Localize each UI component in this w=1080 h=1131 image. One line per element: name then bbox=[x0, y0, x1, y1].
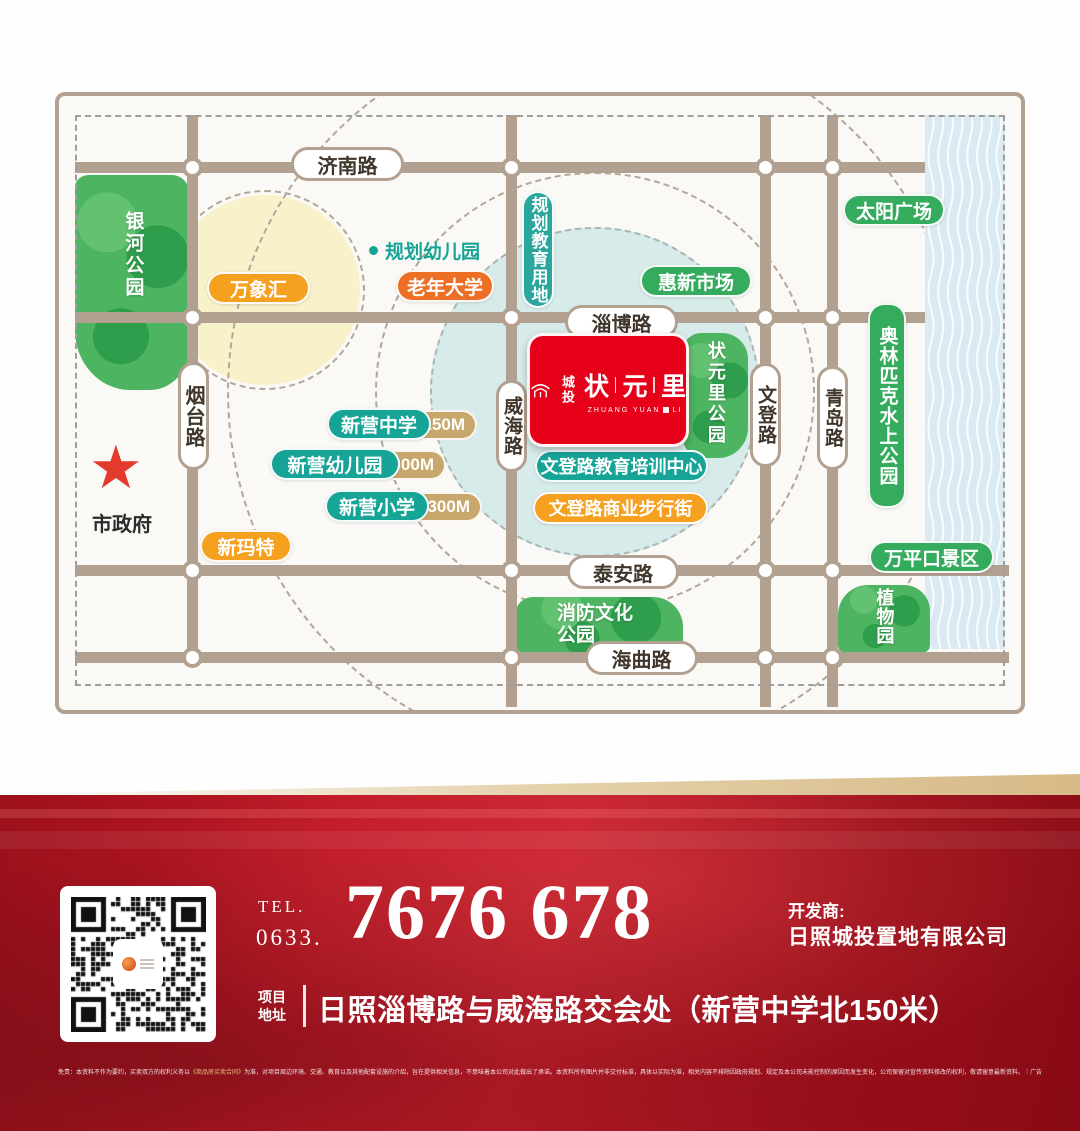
road-label-jinan-text: 济南路 bbox=[318, 150, 378, 179]
road-label-qingdao-text: 青岛路 bbox=[819, 388, 846, 448]
address-label-top: 项目 bbox=[258, 988, 286, 1006]
qr-badge-text-lines bbox=[140, 959, 154, 969]
poi-guihua-jiaoyu-text: 规划教育用地 bbox=[526, 196, 551, 304]
poi-wendeng-shangye: 文登路商业步行街 bbox=[533, 492, 708, 524]
road-label-taian-text: 泰安路 bbox=[593, 558, 653, 587]
road-label-yantai: 烟台路 bbox=[178, 362, 209, 470]
banner-sheen bbox=[0, 809, 1080, 818]
road-label-weihai-text: 威海路 bbox=[498, 396, 525, 456]
poi-taiyang-guangchang: 太阳广场 bbox=[843, 194, 945, 226]
poi-guihua-youeryuan: 规划幼儿园 bbox=[369, 237, 480, 264]
project-logo-block: 城投 状 元 里 ZHUANG YUAN LI bbox=[527, 333, 689, 447]
poi-aolinpike: 奥林匹克水上公园 bbox=[868, 303, 906, 508]
poi-guihua-jiaoyu: 规划教育用地 bbox=[522, 191, 554, 308]
poster: 银河公园 状元里公园 消防文化公园 植物园 bbox=[0, 0, 1080, 1131]
distance-xiaoxue-text: 300M bbox=[427, 497, 470, 517]
road-label-weihai: 威海路 bbox=[496, 380, 527, 472]
disclaimer-contract: 《商品房买卖合同》 bbox=[190, 1069, 244, 1076]
road-label-haiqu: 海曲路 bbox=[585, 641, 698, 675]
project-latin-right: LI bbox=[672, 407, 682, 414]
project-address: 日照淄博路与威海路交会处（新营中学北150米） bbox=[318, 987, 958, 1029]
road-label-haiqu-text: 海曲路 bbox=[612, 644, 672, 673]
project-latin: ZHUANG YUAN LI bbox=[588, 407, 683, 414]
bullet-dot-icon bbox=[369, 246, 378, 255]
address-label: 项目 地址 bbox=[258, 988, 286, 1024]
qr-logo-icon bbox=[122, 957, 136, 971]
poi-laonian-daxue: 老年大学 bbox=[396, 270, 494, 302]
road-label-wendeng: 文登路 bbox=[750, 363, 781, 467]
name-separator bbox=[615, 377, 617, 393]
project-name-char: 元 bbox=[622, 367, 647, 403]
map-canvas: 银河公园 状元里公园 消防文化公园 植物园 bbox=[59, 96, 1021, 710]
project-name-char: 里 bbox=[661, 367, 686, 403]
road-label-qingdao: 青岛路 bbox=[817, 366, 848, 470]
poi-wendeng-jiaoyu: 文登路教育培训中心 bbox=[535, 450, 708, 482]
road-label-taian: 泰安路 bbox=[567, 555, 679, 589]
address-divider bbox=[303, 985, 306, 1027]
poi-huixin-shichang-text: 惠新市场 bbox=[658, 268, 734, 295]
road-label-wendeng-text: 文登路 bbox=[752, 385, 779, 445]
poi-taiyang-guangchang-text: 太阳广场 bbox=[856, 197, 932, 224]
project-latin-left: ZHUANG YUAN bbox=[588, 407, 661, 414]
location-map: 银河公园 状元里公园 消防文化公园 植物园 bbox=[55, 92, 1025, 714]
qr-code bbox=[60, 886, 216, 1042]
poi-xinying-youeryuan: 新营幼儿园 bbox=[270, 448, 400, 480]
project-name: 状 元 里 ZHUANG YUAN LI bbox=[584, 367, 686, 414]
road-label-yantai-text: 烟台路 bbox=[179, 385, 208, 448]
road-label-jinan: 济南路 bbox=[291, 147, 404, 181]
address-label-bottom: 地址 bbox=[258, 1006, 286, 1024]
poi-aolinpike-text: 奥林匹克水上公园 bbox=[874, 326, 901, 486]
poi-xinmate: 新玛特 bbox=[200, 530, 292, 562]
developer-label: 开发商: bbox=[788, 897, 845, 922]
poi-xinying-xiaoxue-text: 新营小学 bbox=[339, 493, 415, 520]
poi-wendeng-shangye-text: 文登路商业步行街 bbox=[549, 495, 693, 521]
phone-number: 7676 678 bbox=[345, 867, 654, 957]
poi-xinying-zhongxue-text: 新营中学 bbox=[341, 411, 417, 438]
poi-laonian-daxue-text: 老年大学 bbox=[407, 273, 483, 300]
name-separator bbox=[653, 377, 655, 393]
gate-logo-icon bbox=[530, 372, 551, 408]
contact-banner: TEL. 0633. 7676 678 开发商: 日照城投置地有限公司 项目 地… bbox=[0, 795, 1080, 1131]
poi-xinmate-text: 新玛特 bbox=[217, 533, 274, 560]
disclaimer-pre: 免责：本资料不作为要约，买卖双方的权利义务以 bbox=[58, 1069, 190, 1076]
project-brand: 城投 bbox=[558, 375, 577, 405]
poi-xinying-zhongxue: 新营中学 bbox=[327, 408, 431, 440]
poi-wanxianghui: 万象汇 bbox=[207, 272, 310, 304]
qr-center-badge bbox=[115, 941, 161, 987]
poi-wendeng-jiaoyu-text: 文登路教育培训中心 bbox=[541, 453, 703, 479]
poi-shizhengfu: 市政府 bbox=[92, 508, 152, 537]
tel-prefix: 0633. bbox=[256, 925, 323, 951]
poi-wanpingkou: 万平口景区 bbox=[869, 541, 994, 573]
city-hall-star-icon: ★ bbox=[89, 438, 143, 498]
poi-huixin-shichang: 惠新市场 bbox=[640, 265, 752, 297]
poi-guihua-youeryuan-text: 规划幼儿园 bbox=[385, 237, 480, 264]
poi-wanpingkou-text: 万平口景区 bbox=[884, 544, 979, 571]
poi-xinying-youeryuan-text: 新营幼儿园 bbox=[287, 451, 382, 478]
tel-label: TEL. bbox=[258, 897, 305, 917]
poi-wanxianghui-text: 万象汇 bbox=[230, 275, 287, 302]
banner-sheen bbox=[0, 831, 1080, 849]
project-name-char: 状 bbox=[584, 367, 609, 403]
poi-xinying-xiaoxue: 新营小学 bbox=[325, 490, 429, 522]
disclaimer-post: 为准，对项目周边环境、交通、教育以及其他配套设施的介绍，旨在提供相关信息，不意味… bbox=[244, 1069, 1042, 1076]
seal-icon bbox=[663, 407, 669, 413]
developer-name: 日照城投置地有限公司 bbox=[788, 921, 1008, 951]
disclaimer: 免责：本资料不作为要约，买卖双方的权利义务以《商品房买卖合同》为准，对项目周边环… bbox=[58, 1067, 1018, 1076]
